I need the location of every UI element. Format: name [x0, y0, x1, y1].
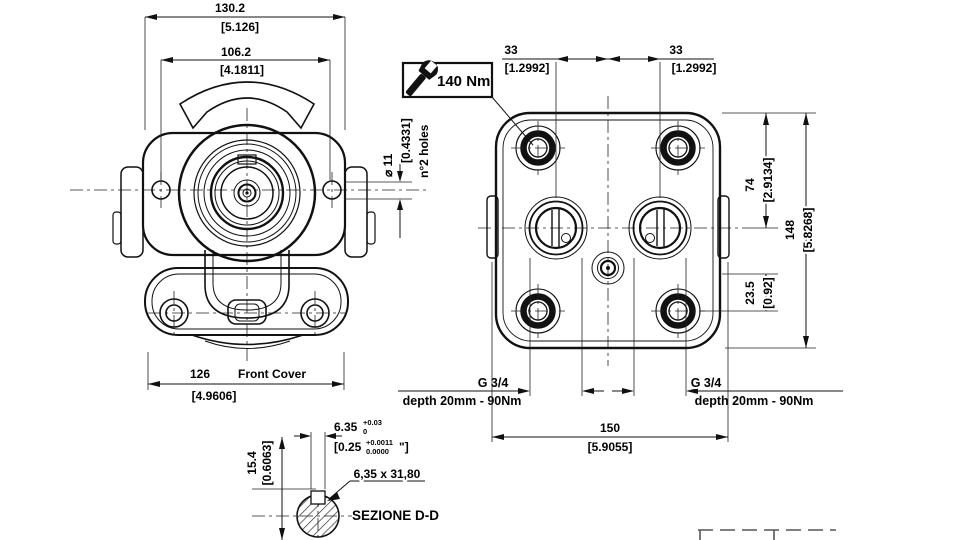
- pump-technical-drawing: 130.2 [5.126] 106.2 [4.1811] ⌀ 11 [0.433…: [0, 0, 960, 540]
- key-width-in-tol-lower: 0.0000: [366, 447, 389, 456]
- key-height-mm: 15.4: [245, 451, 259, 475]
- key-width-in-tol-upper: +0.0011: [366, 438, 393, 447]
- rear-port-offset-dimensions: 33 [1.2992] 33 [1.2992]: [502, 43, 716, 198]
- key-width-in-suffix: "]: [399, 440, 409, 454]
- rear-center-plug: [592, 252, 624, 284]
- rear-h3-mm: 23.5: [743, 281, 757, 305]
- key-size-value: 6,35 x 31,80: [354, 467, 421, 481]
- front-view: 130.2 [5.126] 106.2 [4.1811] ⌀ 11 [0.433…: [70, 1, 431, 403]
- rear-h1-in: [2.9134]: [761, 158, 775, 203]
- rear-offset-left-mm: 33: [504, 43, 518, 57]
- key-width-in: [0.25: [334, 440, 362, 454]
- front-hole-dia: ⌀ 11: [381, 153, 395, 177]
- title-block-fragment: [698, 530, 836, 540]
- rear-width-mm: 150: [600, 421, 620, 435]
- rear-offset-right-in: [1.2992]: [672, 61, 717, 75]
- key-width-tol-upper: +0.03: [363, 418, 382, 427]
- rear-width-in: [5.9055]: [588, 440, 633, 454]
- front-width-in: [5.126]: [221, 20, 259, 34]
- front-bottom-cover: [145, 268, 348, 349]
- key-width-mm: 6.35: [334, 420, 358, 434]
- front-cover-in: [4.9606]: [192, 389, 237, 403]
- rear-view: 140 Nm 33 [1.2992] 33 [1.2992]: [398, 43, 843, 454]
- rear-h2-mm: 148: [783, 220, 797, 240]
- front-holes-mm: 106.2: [221, 45, 251, 59]
- port-left-depth: depth 20mm - 90Nm: [403, 394, 522, 408]
- front-cover-label: Front Cover: [238, 367, 306, 381]
- section-title: SEZIONE D-D: [352, 508, 439, 523]
- key-width-tol-lower: 0: [363, 427, 367, 436]
- rear-offset-left-in: [1.2992]: [505, 61, 550, 75]
- key-slot: [311, 491, 325, 504]
- torque-value: 140 Nm: [437, 73, 490, 90]
- rear-h1-mm: 74: [743, 178, 757, 192]
- rear-width-dimension: 150 [5.9055]: [492, 262, 728, 454]
- rear-h3-in: [0.92]: [761, 277, 775, 308]
- front-holes-in: [4.1811]: [220, 63, 264, 77]
- front-width-mm: 130.2: [215, 1, 245, 15]
- front-hole-dia-in: [0.4331]: [399, 118, 413, 163]
- section-dd: 6.35 +0.03 0 [0.25 +0.0011 0.0000 "] 15.…: [245, 418, 439, 540]
- key-height-in: [0.6063]: [260, 441, 274, 486]
- rear-h2-in: [5.8268]: [801, 208, 815, 253]
- port-left-thread: G 3/4: [478, 376, 509, 390]
- front-hole-callout: ⌀ 11 [0.4331] n°2 holes: [344, 118, 431, 238]
- front-hole-note: n°2 holes: [417, 124, 431, 178]
- rotation-arrow-icon: [180, 82, 314, 128]
- port-right-depth: depth 20mm - 90Nm: [695, 394, 814, 408]
- port-right-thread: G 3/4: [691, 376, 722, 390]
- front-cover-dimension: 126 Front Cover [4.9606]: [148, 352, 344, 403]
- rear-port-callouts: G 3/4 depth 20mm - 90Nm G 3/4 depth 20mm…: [398, 258, 843, 408]
- rear-offset-right-mm: 33: [669, 43, 683, 57]
- drawing-svg: 130.2 [5.126] 106.2 [4.1811] ⌀ 11 [0.433…: [0, 0, 960, 540]
- front-cover-mm: 126: [190, 367, 210, 381]
- key-size-callout: 6,35 x 31,80: [327, 467, 425, 501]
